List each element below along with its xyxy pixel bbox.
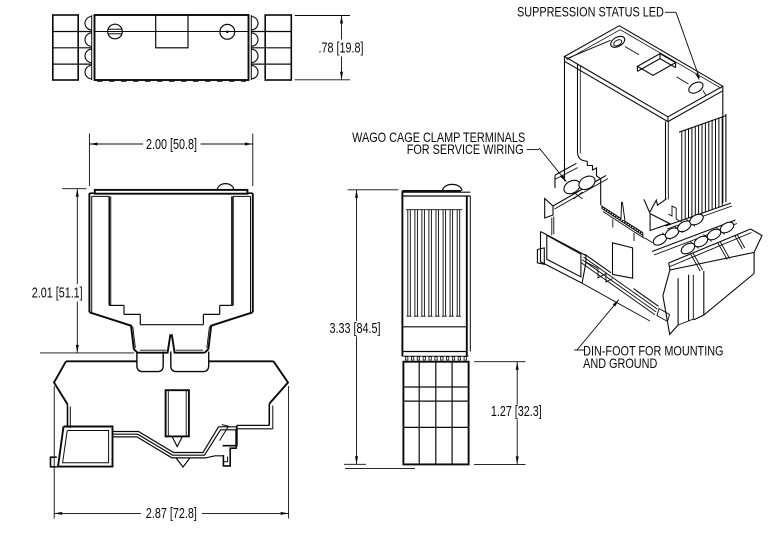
svg-text:AND GROUND: AND GROUND [583,356,657,371]
svg-text:FOR SERVICE WIRING: FOR SERVICE WIRING [407,142,524,157]
svg-text:2.87 [72.8]: 2.87 [72.8] [146,504,197,521]
svg-text:SUPPRESSION STATUS LED: SUPPRESSION STATUS LED [517,4,664,19]
svg-text:3.33 [84.5]: 3.33 [84.5] [330,319,381,336]
svg-text:.78 [19.8]: .78 [19.8] [319,39,364,56]
svg-text:2.00 [50.8]: 2.00 [50.8] [146,135,197,152]
svg-text:1.27 [32.3]: 1.27 [32.3] [491,402,542,419]
svg-text:2.01 [51.1]: 2.01 [51.1] [32,284,83,301]
